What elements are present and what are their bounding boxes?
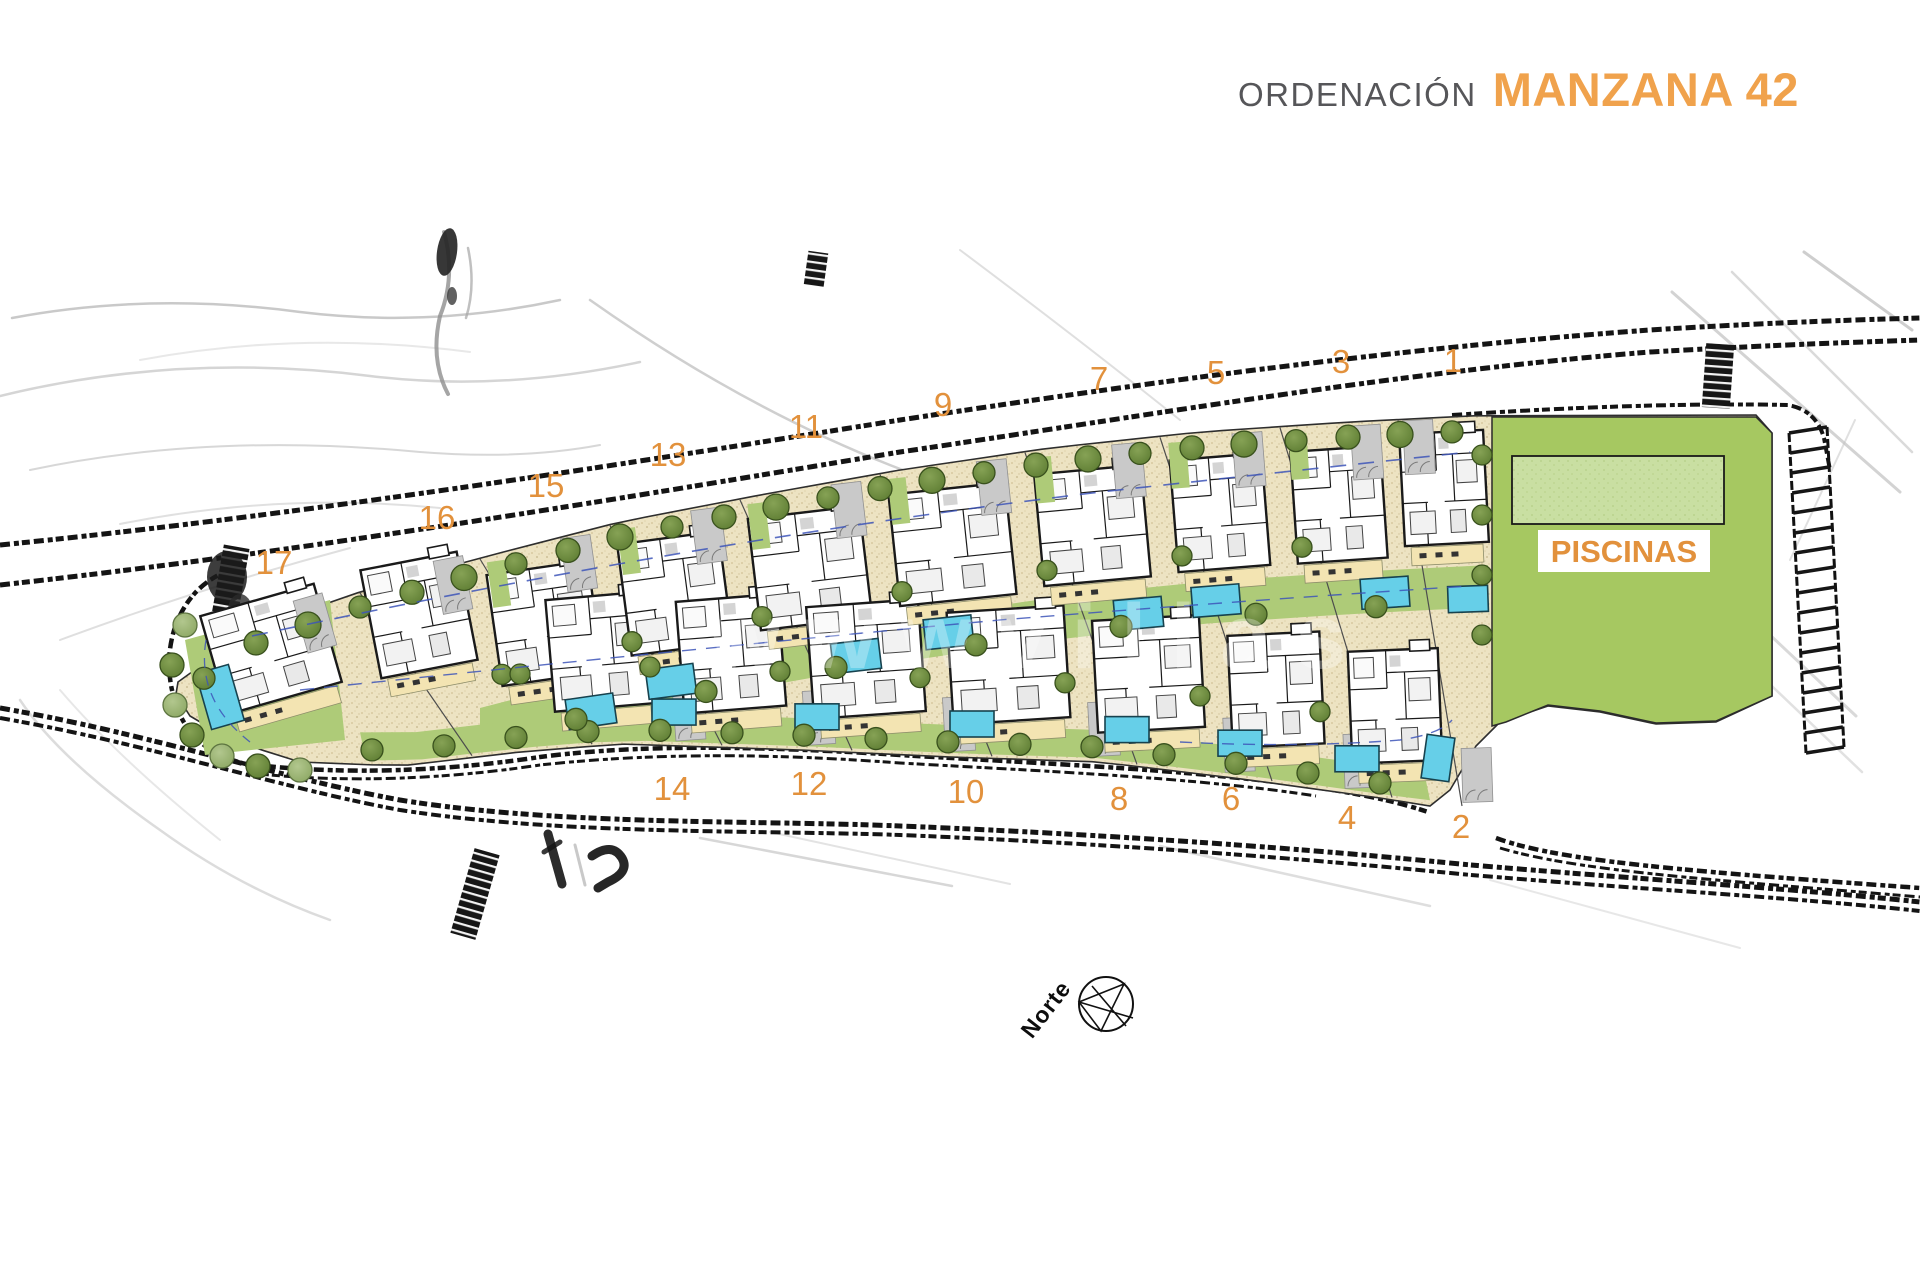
villa-stair [593, 601, 606, 613]
terrace-furniture [1193, 578, 1200, 584]
private-pool [1335, 746, 1379, 772]
terrace-furniture [699, 720, 706, 726]
tree-icon [163, 693, 187, 717]
terrace-furniture [1435, 552, 1442, 557]
tree-icon [607, 524, 633, 550]
terrace-furniture [663, 659, 671, 665]
slope-hatch-rung [1798, 587, 1836, 593]
terrace-furniture [533, 689, 541, 695]
tree-icon [1387, 422, 1413, 448]
terrain-contour-line [140, 343, 470, 360]
terrace-furniture [1225, 576, 1232, 582]
tree-icon [1075, 446, 1101, 472]
villa-furniture [1017, 686, 1039, 710]
villa-furniture [1346, 526, 1364, 549]
terrace-furniture [1451, 551, 1458, 556]
tree-icon [1180, 436, 1204, 460]
tree-icon [865, 728, 887, 750]
villa-stair [1212, 462, 1224, 474]
title-block-name: MANZANA 42 [1493, 62, 1799, 117]
tree-icon [649, 719, 671, 741]
terrace-furniture [861, 723, 868, 728]
tree-icon [1369, 772, 1391, 794]
terrain-contour-line [1790, 420, 1855, 560]
tree-icon [288, 758, 312, 782]
terrain-contour-line [0, 362, 640, 396]
terrace-furniture [1263, 754, 1270, 759]
slope-hatch-rung [1791, 467, 1829, 473]
slope-hatch-rung [1796, 567, 1834, 573]
tree-icon [246, 754, 270, 778]
tree-icon [868, 477, 892, 501]
tree-icon [973, 462, 995, 484]
plot-number-17: 17 [256, 544, 293, 581]
villa-furniture [367, 572, 392, 596]
villa-stair [943, 493, 958, 506]
villa-furniture [1227, 533, 1245, 557]
plot-number-13: 13 [650, 436, 687, 473]
survey-number-sketch [592, 849, 624, 888]
tree-icon [505, 726, 527, 748]
plot-number-14: 14 [654, 770, 691, 807]
villa-stair [1389, 655, 1400, 667]
villa-furniture [961, 688, 997, 713]
villa-furniture [429, 632, 451, 657]
terrace-furniture [1419, 553, 1426, 558]
villa-furniture [1410, 511, 1436, 535]
tree-icon [492, 664, 512, 684]
tree-icon [1472, 505, 1492, 525]
slope-hatch-rung [1800, 627, 1838, 633]
tree-icon [160, 653, 184, 677]
slope-hatch-rung [1794, 527, 1832, 533]
tree-icon [1231, 431, 1257, 457]
villa-furniture [1456, 459, 1477, 482]
tree-icon [1297, 762, 1319, 784]
tree-icon [1310, 702, 1330, 722]
plot-number-1: 1 [1444, 342, 1462, 379]
tree-icon [556, 538, 580, 562]
north-compass: Norte [1015, 975, 1133, 1042]
tree-icon [937, 731, 959, 753]
slope-hatch-rung [1790, 447, 1828, 453]
tree-icon [1190, 686, 1210, 706]
plot-number-5: 5 [1207, 354, 1225, 391]
dark-bush-sketch [447, 287, 457, 305]
tree-icon [1336, 425, 1360, 449]
villa-stair [1332, 454, 1344, 466]
villa-furniture [968, 513, 998, 538]
tree-icon [173, 613, 197, 637]
tree-icon [505, 553, 527, 575]
dark-bush-sketch [434, 227, 460, 277]
terrace-furniture [1328, 569, 1335, 574]
terrace-furniture [1399, 769, 1406, 774]
driveway-group [1461, 748, 1493, 803]
tree-icon [180, 723, 204, 747]
plot-number-9: 9 [934, 386, 952, 423]
plot-number-12: 12 [791, 765, 828, 802]
terrace-furniture [1000, 729, 1007, 734]
tree-icon [565, 708, 587, 730]
site-plan-page: 1716151311975311412108642 wwwvillas PISC… [0, 0, 1920, 1280]
tree-icon [712, 505, 736, 529]
terrain-contour-line [466, 248, 472, 318]
tree-icon [1037, 560, 1057, 580]
slope-hatch-rung [1803, 687, 1841, 693]
road-crossing-hatch [1702, 343, 1734, 409]
plot-number-2: 2 [1452, 808, 1470, 845]
slope-hatch-rung [1792, 487, 1830, 493]
tree-icon [763, 494, 789, 520]
terrace-furniture [1279, 753, 1286, 758]
tree-icon [210, 744, 234, 768]
tree-icon [622, 632, 642, 652]
villa-furniture [1101, 545, 1122, 569]
slope-hatch-rung [1804, 707, 1842, 713]
road-crossing-hatch [804, 251, 829, 287]
tree-icon [361, 739, 383, 761]
tree-icon [451, 565, 477, 591]
tree-icon [1153, 744, 1175, 766]
villa-stair [406, 565, 420, 578]
villa-furniture [1156, 695, 1176, 718]
villa-stair [800, 517, 815, 530]
north-label: Norte [1015, 975, 1076, 1042]
terrain-contour-line [1490, 880, 1740, 948]
slope-hatch-rung [1795, 547, 1833, 553]
slope-hatch-rung [1799, 607, 1837, 613]
terrace-furniture [1312, 570, 1319, 575]
watermark-text: wwwvillas [709, 586, 1371, 688]
villa-furniture [1450, 509, 1466, 532]
villa-furniture [609, 672, 629, 696]
driveway [1461, 748, 1493, 803]
private-pool [1421, 734, 1455, 781]
tree-icon [1172, 546, 1192, 566]
villa-furniture [552, 604, 576, 626]
private-pool [1105, 717, 1149, 743]
plot-number-11: 11 [789, 408, 823, 445]
tree-icon [1225, 752, 1247, 774]
terrain-contour-line [12, 300, 560, 318]
villa-furniture [1283, 711, 1301, 734]
tree-icon [1292, 537, 1312, 557]
terrace-furniture [518, 691, 526, 697]
plot-number-6: 6 [1222, 780, 1240, 817]
tree-icon [1285, 430, 1307, 452]
tree-icon [1024, 453, 1048, 477]
private-pool [1448, 585, 1489, 612]
tree-icon [1441, 421, 1463, 443]
plot-number-3: 3 [1332, 343, 1350, 380]
villa-furniture [962, 564, 985, 588]
slope-hatch-rung [1801, 647, 1839, 653]
tree-icon [919, 467, 945, 493]
road-crossing-hatch [450, 848, 499, 940]
terrace-furniture [715, 719, 722, 725]
tree-icon [721, 722, 743, 744]
tree-icon [817, 487, 839, 509]
villa-stair [1084, 474, 1098, 486]
slope-hatch-rung [1805, 727, 1843, 733]
tree-icon [1472, 445, 1492, 465]
tree-icon [193, 667, 215, 689]
villa-furniture [688, 561, 715, 586]
plot-number-16: 16 [419, 499, 456, 536]
tree-icon [349, 596, 371, 618]
tree-icon [1472, 565, 1492, 585]
tree-icon [1129, 442, 1151, 464]
villa-porch [1409, 639, 1429, 651]
tree-icon [433, 735, 455, 757]
tree-icon [793, 724, 815, 746]
villa-furniture [1408, 678, 1430, 701]
communal-pool [1512, 456, 1724, 524]
site-plan-svg: 1716151311975311412108642 wwwvillas PISC… [0, 0, 1920, 1280]
terrace-furniture [1209, 577, 1216, 583]
plot-number-8: 8 [1110, 780, 1128, 817]
terrace-furniture [845, 724, 852, 729]
tree-icon [1472, 625, 1492, 645]
survey-number-sketch [575, 845, 585, 885]
terrain-contour-line [700, 838, 952, 886]
tree-icon [661, 516, 683, 538]
villa-furniture [682, 606, 706, 628]
plot-number-15: 15 [528, 467, 565, 504]
terrain-contour-line [30, 445, 600, 470]
plot-number-10: 10 [948, 773, 985, 810]
villa-furniture [1401, 727, 1418, 750]
piscinas-label-group: PISCINAS [1538, 530, 1710, 572]
tree-icon [1081, 736, 1103, 758]
terrace-furniture [1344, 568, 1351, 573]
drawing-title: ORDENACIÓN MANZANA 42 [1238, 62, 1799, 117]
villa-furniture [825, 536, 854, 561]
plot-number-4: 4 [1338, 799, 1356, 836]
tree-icon [640, 657, 660, 677]
tree-icon [1009, 733, 1031, 755]
title-section-label: ORDENACIÓN [1238, 76, 1477, 114]
piscinas-label: PISCINAS [1551, 534, 1697, 569]
private-pool [950, 711, 994, 737]
plot-number-7: 7 [1090, 360, 1108, 397]
villa-stair [664, 542, 678, 555]
